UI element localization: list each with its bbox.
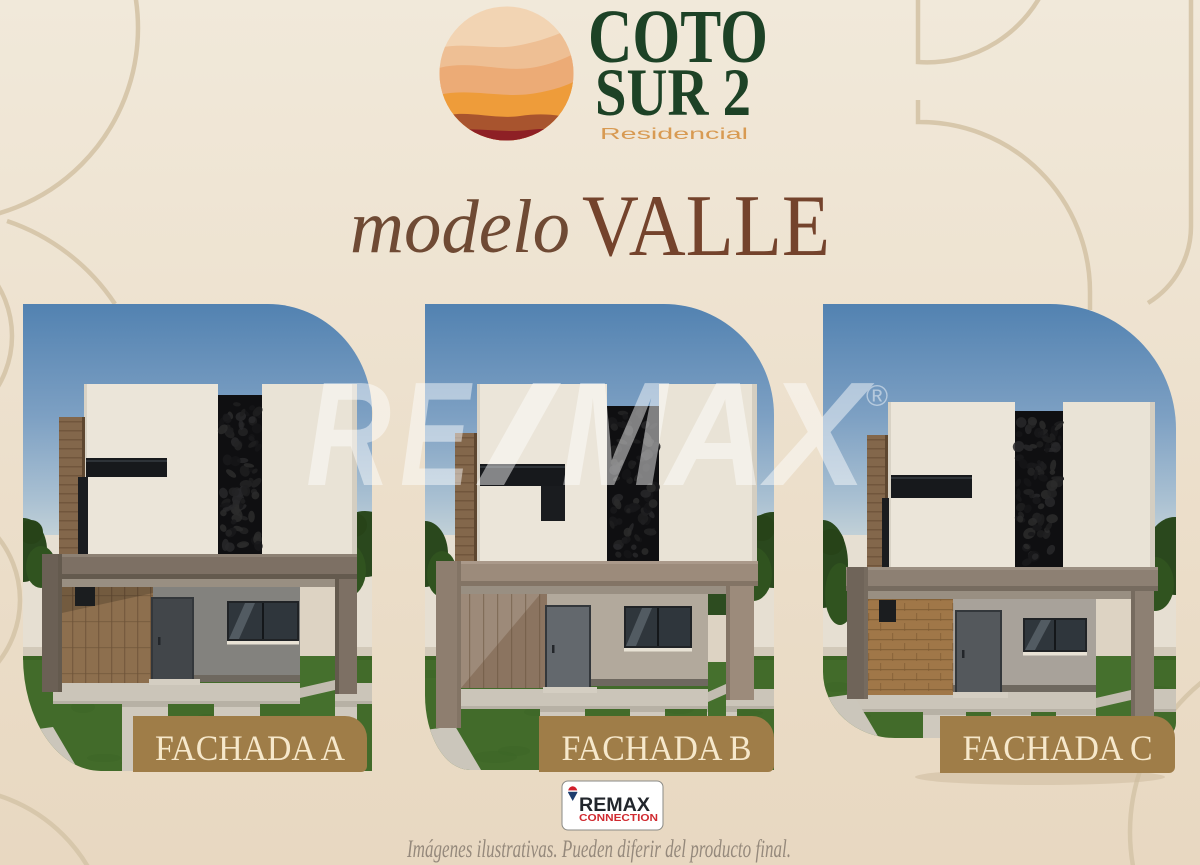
svg-text:VALLE: VALLE [582, 178, 830, 275]
svg-text:FACHADA C: FACHADA C [963, 728, 1153, 768]
svg-text:X: X [760, 352, 875, 517]
svg-text:R: R [306, 352, 391, 517]
svg-text:Imágenes ilustrativas. Pueden: Imágenes ilustrativas. Pueden diferir de… [406, 836, 791, 863]
svg-text:E: E [400, 352, 473, 517]
svg-text:FACHADA A: FACHADA A [155, 728, 345, 768]
svg-text:A: A [662, 352, 766, 517]
svg-text:modelo: modelo [350, 185, 570, 269]
svg-text:M: M [561, 352, 669, 517]
svg-text:SUR 2: SUR 2 [595, 54, 751, 130]
svg-text:Residencial: Residencial [600, 126, 748, 143]
svg-text:®: ® [866, 380, 888, 413]
svg-text:FACHADA B: FACHADA B [562, 728, 752, 768]
svg-text:CONNECTION: CONNECTION [579, 812, 658, 824]
